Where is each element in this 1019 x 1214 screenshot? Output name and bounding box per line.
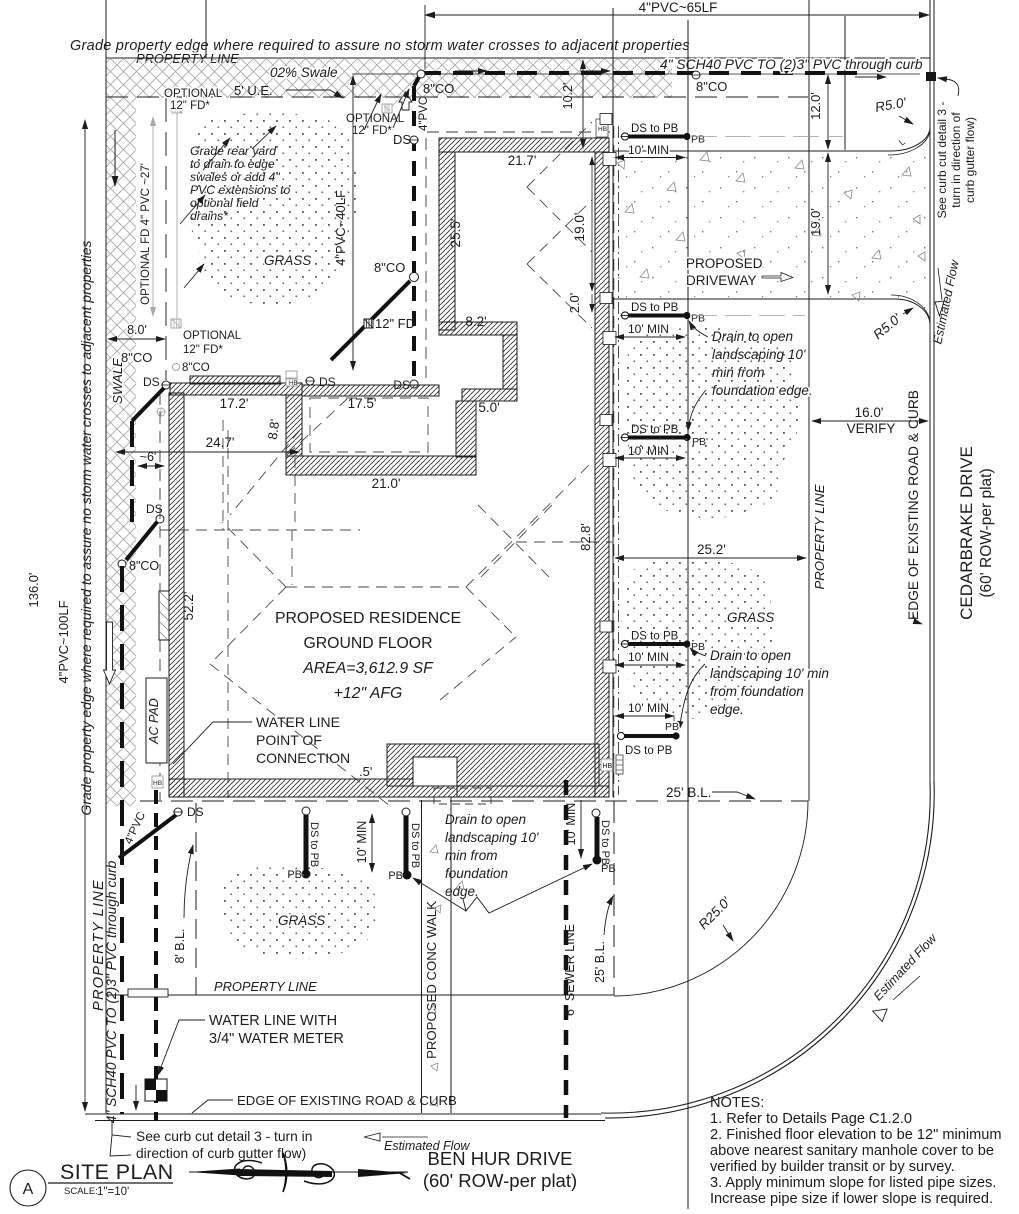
svg-text:+12" AFG: +12" AFG <box>334 685 403 702</box>
svg-text:PROPOSED CONC WALK: PROPOSED CONC WALK <box>424 901 439 1059</box>
svg-text:21.0': 21.0' <box>372 476 401 491</box>
svg-text:12" FD*: 12" FD* <box>183 344 223 356</box>
svg-text:GRASS: GRASS <box>727 610 774 625</box>
svg-text:12" FD: 12" FD <box>375 316 415 331</box>
svg-text:12.0': 12.0' <box>808 92 823 120</box>
svg-text:DS: DS <box>187 805 204 819</box>
svg-text:10' MIN: 10' MIN <box>628 650 669 664</box>
svg-text:Increase pipe size if lower sl: Increase pipe size if lower slope is req… <box>710 1191 993 1207</box>
svg-text:PROPERTY LINE: PROPERTY LINE <box>214 979 317 994</box>
svg-text:4" SCH40 PVC TO (2)3" PVC thro: 4" SCH40 PVC TO (2)3" PVC through curb <box>104 860 119 1123</box>
svg-text:DS: DS <box>393 132 411 147</box>
svg-text:HB: HB <box>603 763 613 770</box>
svg-text:AREA=3,612.9 SF: AREA=3,612.9 SF <box>302 660 434 677</box>
svg-text:direction of curb gutter flow): direction of curb gutter flow) <box>136 1146 306 1161</box>
svg-text:19.0': 19.0' <box>808 208 823 236</box>
svg-text:19.0': 19.0' <box>572 213 587 242</box>
svg-text:PB: PB <box>665 721 679 733</box>
svg-text:82.8': 82.8' <box>578 523 593 551</box>
svg-text:(60' ROW-per plat): (60' ROW-per plat) <box>978 468 995 597</box>
svg-text:4"PVC: 4"PVC <box>418 97 430 131</box>
svg-text:DS to PB: DS to PB <box>625 745 673 757</box>
svg-text:8.0': 8.0' <box>127 323 147 337</box>
svg-text:DS: DS <box>319 375 336 389</box>
svg-text:8"CO: 8"CO <box>374 260 405 275</box>
svg-text:DS to PB: DS to PB <box>631 631 679 643</box>
svg-text:2. Finished floor elevation to: 2. Finished floor elevation to be 12" mi… <box>710 1127 1002 1143</box>
svg-text:8"CO: 8"CO <box>129 559 159 573</box>
svg-text:from foundation: from foundation <box>710 684 804 699</box>
svg-text:4"PVC~65LF: 4"PVC~65LF <box>639 0 718 15</box>
svg-text:OPTIONAL: OPTIONAL <box>164 88 223 100</box>
svg-text:edge.: edge. <box>710 702 744 717</box>
svg-text:HB: HB <box>289 381 297 387</box>
svg-text:24.7': 24.7' <box>206 435 235 450</box>
svg-text:GROUND FLOOR: GROUND FLOOR <box>303 635 432 652</box>
svg-text:PROPOSED: PROPOSED <box>686 256 763 271</box>
svg-text:DS to PB: DS to PB <box>409 823 421 868</box>
svg-text:Drain to open: Drain to open <box>710 648 791 663</box>
svg-text:turn in direction of: turn in direction of <box>949 112 963 208</box>
svg-text:52.2': 52.2' <box>181 592 196 621</box>
svg-text:POINT OF: POINT OF <box>256 732 322 748</box>
svg-text:8"CO: 8"CO <box>423 81 454 96</box>
svg-text:DRIVEWAY: DRIVEWAY <box>686 273 757 288</box>
svg-text:PB: PB <box>388 870 403 882</box>
svg-text:curb gutter flow): curb gutter flow) <box>963 117 977 203</box>
svg-text:5' U.E.: 5' U.E. <box>234 83 273 98</box>
svg-text:OPTIONAL: OPTIONAL <box>183 330 242 342</box>
svg-text:HB: HB <box>153 780 162 787</box>
svg-text:See curb cut detail 3 -: See curb cut detail 3 - <box>935 102 949 219</box>
svg-text:EDGE OF EXISTING ROAD & CURB: EDGE OF EXISTING ROAD & CURB <box>237 1093 457 1108</box>
svg-text:1"=10': 1"=10' <box>97 1186 129 1198</box>
svg-text:02% Swale: 02% Swale <box>270 65 338 80</box>
svg-text:foundation: foundation <box>445 866 508 881</box>
svg-text:10' MIN: 10' MIN <box>355 821 369 864</box>
svg-text:PB: PB <box>691 313 705 325</box>
svg-text:16.0': 16.0' <box>855 405 884 420</box>
svg-text:(60' ROW-per plat): (60' ROW-per plat) <box>423 1170 577 1191</box>
svg-text:8"CO: 8"CO <box>121 350 152 365</box>
svg-text:WATER LINE WITH: WATER LINE WITH <box>209 1013 337 1029</box>
svg-text:BEN HUR DRIVE: BEN HUR DRIVE <box>428 1148 573 1169</box>
svg-text:DS to PB: DS to PB <box>631 123 679 135</box>
svg-text:A: A <box>23 1181 34 1198</box>
svg-text:verified by builder transit or: verified by builder transit or by survey… <box>710 1159 955 1175</box>
svg-text:17.5': 17.5' <box>348 396 377 411</box>
svg-text:8.2': 8.2' <box>465 314 486 329</box>
svg-text:See curb cut detail 3 - turn i: See curb cut detail 3 - turn in <box>136 1129 312 1144</box>
svg-text:10' MIN: 10' MIN <box>628 143 669 157</box>
svg-text:5.0': 5.0' <box>478 400 499 415</box>
svg-text:21.7': 21.7' <box>508 153 537 168</box>
svg-text:GRASS: GRASS <box>264 253 311 268</box>
svg-text:DS to PB: DS to PB <box>599 820 611 865</box>
svg-text:above nearest sanitary manhole: above nearest sanitary manhole cover to … <box>710 1143 994 1159</box>
svg-text:25.2': 25.2' <box>697 542 726 557</box>
svg-text:EDGE OF EXISTING ROAD & CURB: EDGE OF EXISTING ROAD & CURB <box>906 390 921 620</box>
svg-text:NOTES:: NOTES: <box>710 1095 764 1111</box>
svg-text:GRASS: GRASS <box>278 913 325 928</box>
svg-text:12" FD*: 12" FD* <box>352 125 392 137</box>
svg-text:min from: min from <box>445 848 498 863</box>
svg-text:edge.: edge. <box>445 884 479 899</box>
svg-text:landscaping 10': landscaping 10' <box>445 830 539 845</box>
svg-text:PB: PB <box>691 641 705 653</box>
svg-text:DS: DS <box>143 375 160 389</box>
svg-text:25.5': 25.5' <box>448 219 463 248</box>
svg-text:DS to PB: DS to PB <box>308 822 320 867</box>
svg-text:landscaping 10' min: landscaping 10' min <box>710 666 829 681</box>
svg-text:.5': .5' <box>359 764 372 779</box>
svg-text:4" SCH40 PVC TO (2)3" PVC thro: 4" SCH40 PVC TO (2)3" PVC through curb <box>660 57 923 72</box>
svg-text:WATER LINE: WATER LINE <box>256 714 340 730</box>
svg-text:OPTIONAL: OPTIONAL <box>346 113 405 125</box>
svg-text:CONNECTION: CONNECTION <box>256 750 350 766</box>
svg-text:2.0': 2.0' <box>567 293 582 314</box>
svg-text:6" SEWER LINE: 6" SEWER LINE <box>563 924 577 1016</box>
svg-text:DS to PB: DS to PB <box>631 302 679 314</box>
svg-text:25' B.L.: 25' B.L. <box>593 941 607 983</box>
svg-text:SITE PLAN: SITE PLAN <box>60 1160 174 1184</box>
svg-text:HB: HB <box>598 126 607 133</box>
svg-text:8' B.L.: 8' B.L. <box>173 928 187 963</box>
svg-text:10.2': 10.2' <box>561 83 575 110</box>
svg-text:Drain to open: Drain to open <box>445 812 526 827</box>
svg-text:AC PAD: AC PAD <box>147 698 161 745</box>
svg-text:4"PVC~100LF: 4"PVC~100LF <box>56 600 71 683</box>
svg-text:~6': ~6' <box>140 450 157 464</box>
svg-text:8"CO: 8"CO <box>182 362 210 374</box>
svg-text:PROPERTY LINE: PROPERTY LINE <box>812 484 827 589</box>
svg-text:OPTIONAL FD 4" PVC ~27': OPTIONAL FD 4" PVC ~27' <box>140 163 152 305</box>
svg-text:1. Refer to Details Page C1.2.: 1. Refer to Details Page C1.2.0 <box>710 1111 912 1127</box>
svg-text:Grade property edge where requ: Grade property edge where required to as… <box>78 240 94 815</box>
svg-text:12" FD*: 12" FD* <box>170 100 210 112</box>
svg-text:17.2': 17.2' <box>220 396 249 411</box>
svg-text:3/4" WATER METER: 3/4" WATER METER <box>209 1031 344 1047</box>
svg-text:25' B.L.: 25' B.L. <box>666 785 711 800</box>
svg-text:PB: PB <box>691 134 705 146</box>
svg-text:SCALE:: SCALE: <box>64 1186 98 1197</box>
svg-text:8.8': 8.8' <box>265 418 283 440</box>
svg-text:8"CO: 8"CO <box>696 79 727 94</box>
svg-text:3. Apply minimum slope for lis: 3. Apply minimum slope for listed pipe s… <box>710 1175 996 1191</box>
svg-text:10' MIN: 10' MIN <box>628 701 669 715</box>
svg-text:PROPOSED RESIDENCE: PROPOSED RESIDENCE <box>275 610 461 627</box>
svg-text:136.0': 136.0' <box>26 572 41 607</box>
svg-text:CEDARBRAKE DRIVE: CEDARBRAKE DRIVE <box>957 446 976 620</box>
svg-text:VERIFY: VERIFY <box>847 421 896 436</box>
